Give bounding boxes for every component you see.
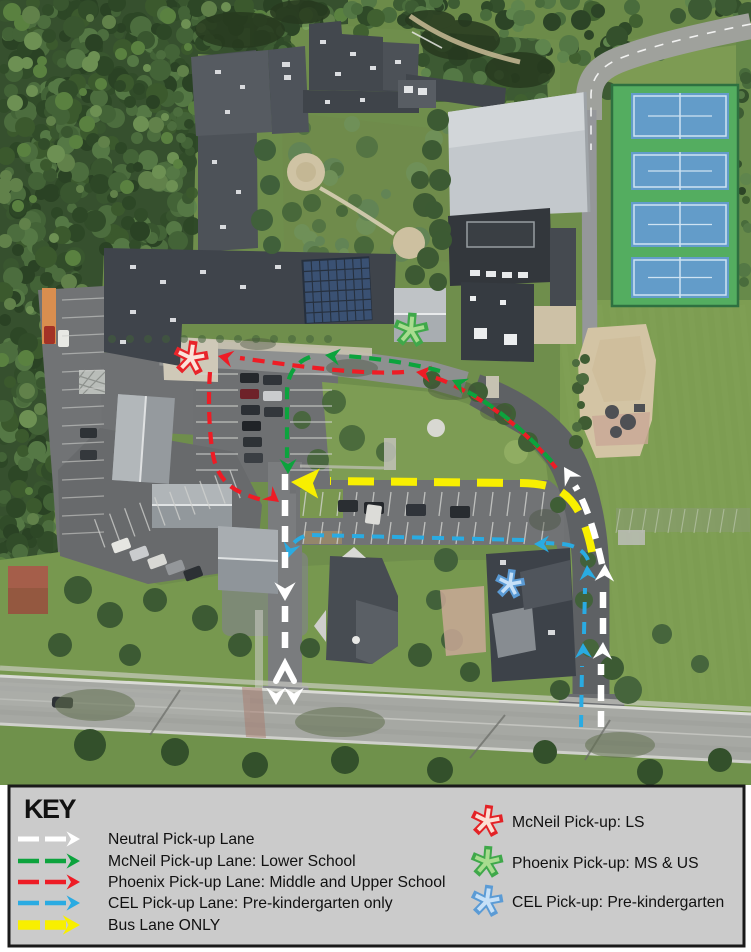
svg-text:Neutral Pick-up Lane: Neutral Pick-up Lane	[108, 831, 255, 848]
svg-text:Phoenix Pick-up: MS & US: Phoenix Pick-up: MS & US	[512, 855, 699, 872]
svg-text:Bus Lane ONLY: Bus Lane ONLY	[108, 917, 221, 934]
svg-text:CEL Pick-up: Pre-kindergarten: CEL Pick-up: Pre-kindergarten	[512, 894, 724, 911]
svg-text:McNeil Pick-up: LS: McNeil Pick-up: LS	[512, 814, 645, 831]
svg-text:KEY: KEY	[24, 794, 77, 824]
svg-text:CEL Pick-up Lane: Pre-kinderga: CEL Pick-up Lane: Pre-kindergarten only	[108, 895, 393, 912]
svg-text:Phoenix Pick-up Lane: Middle a: Phoenix Pick-up Lane: Middle and Upper S…	[108, 874, 446, 891]
svg-text:McNeil Pick-up Lane: Lower Sch: McNeil Pick-up Lane: Lower School	[108, 853, 356, 870]
